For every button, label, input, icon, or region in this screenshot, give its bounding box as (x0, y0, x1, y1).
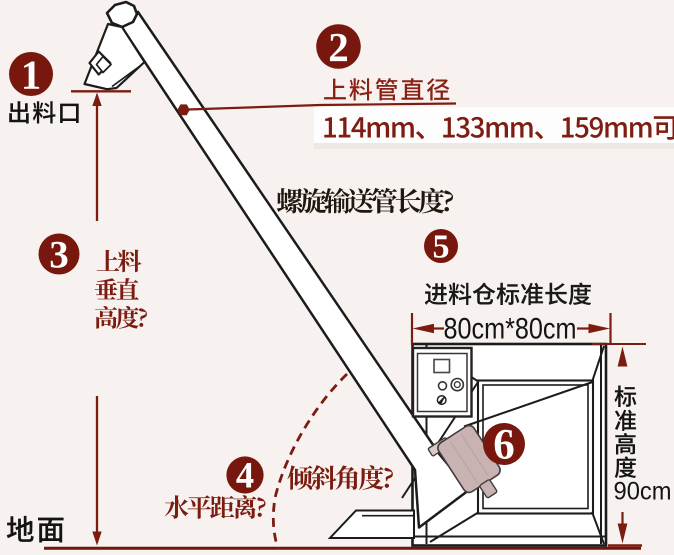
svg-text:2: 2 (328, 24, 349, 70)
svg-text:6: 6 (493, 422, 515, 469)
svg-text:5: 5 (433, 229, 450, 266)
svg-text:1: 1 (21, 52, 42, 98)
svg-text:80cm*80cm: 80cm*80cm (444, 313, 577, 346)
svg-text:3: 3 (49, 234, 69, 277)
svg-text:90cm: 90cm (614, 478, 672, 506)
svg-text:4: 4 (236, 455, 254, 496)
